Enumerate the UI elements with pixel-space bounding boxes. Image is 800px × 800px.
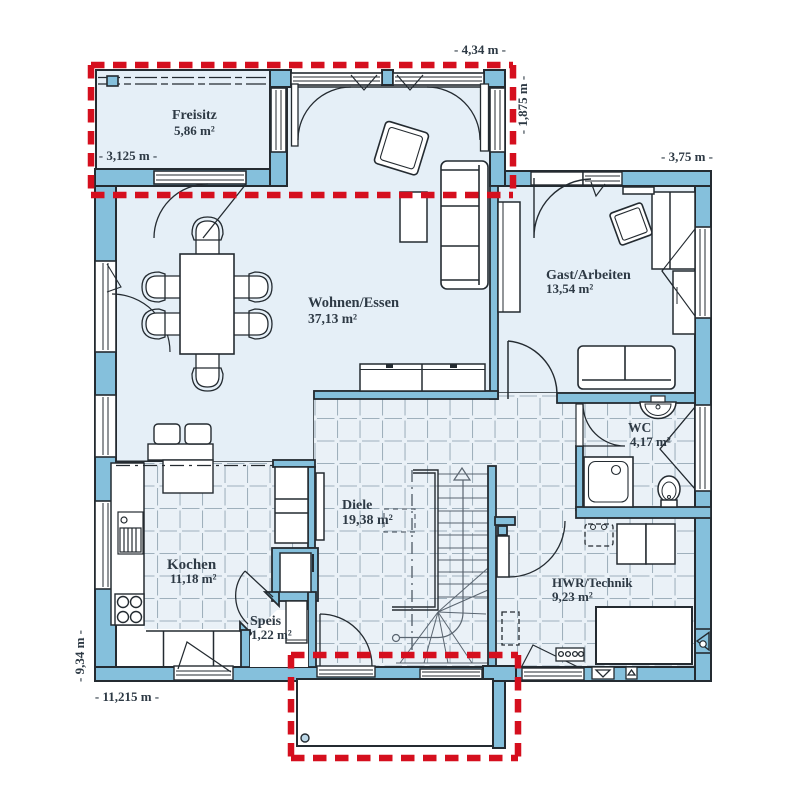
- svg-text:Diele: Diele: [342, 498, 372, 513]
- svg-text:13,54 m²: 13,54 m²: [546, 281, 593, 296]
- svg-text:Wohnen/Essen: Wohnen/Essen: [308, 295, 399, 311]
- svg-text:9,23 m²: 9,23 m²: [552, 589, 593, 604]
- svg-text:11,18 m²: 11,18 m²: [170, 571, 217, 586]
- svg-text:37,13 m²: 37,13 m²: [308, 311, 357, 326]
- svg-text:19,38 m²: 19,38 m²: [342, 513, 393, 528]
- svg-text:HWR/Technik: HWR/Technik: [552, 575, 633, 590]
- svg-text:5,86 m²: 5,86 m²: [174, 123, 215, 138]
- svg-text:WC: WC: [628, 420, 651, 435]
- svg-text:- 9,34 m -: - 9,34 m -: [72, 630, 87, 682]
- svg-text:4,17 m²: 4,17 m²: [630, 434, 671, 449]
- svg-text:- 4,34 m -: - 4,34 m -: [454, 42, 506, 57]
- svg-text:- 1,875 m -: - 1,875 m -: [515, 76, 530, 135]
- svg-text:Freisitz: Freisitz: [172, 108, 217, 123]
- svg-text:- 3,75 m -: - 3,75 m -: [661, 149, 713, 164]
- svg-text:1,22 m²: 1,22 m²: [251, 627, 292, 642]
- svg-text:- 3,125 m -: - 3,125 m -: [99, 148, 158, 163]
- svg-text:- 11,215 m -: - 11,215 m -: [95, 689, 159, 704]
